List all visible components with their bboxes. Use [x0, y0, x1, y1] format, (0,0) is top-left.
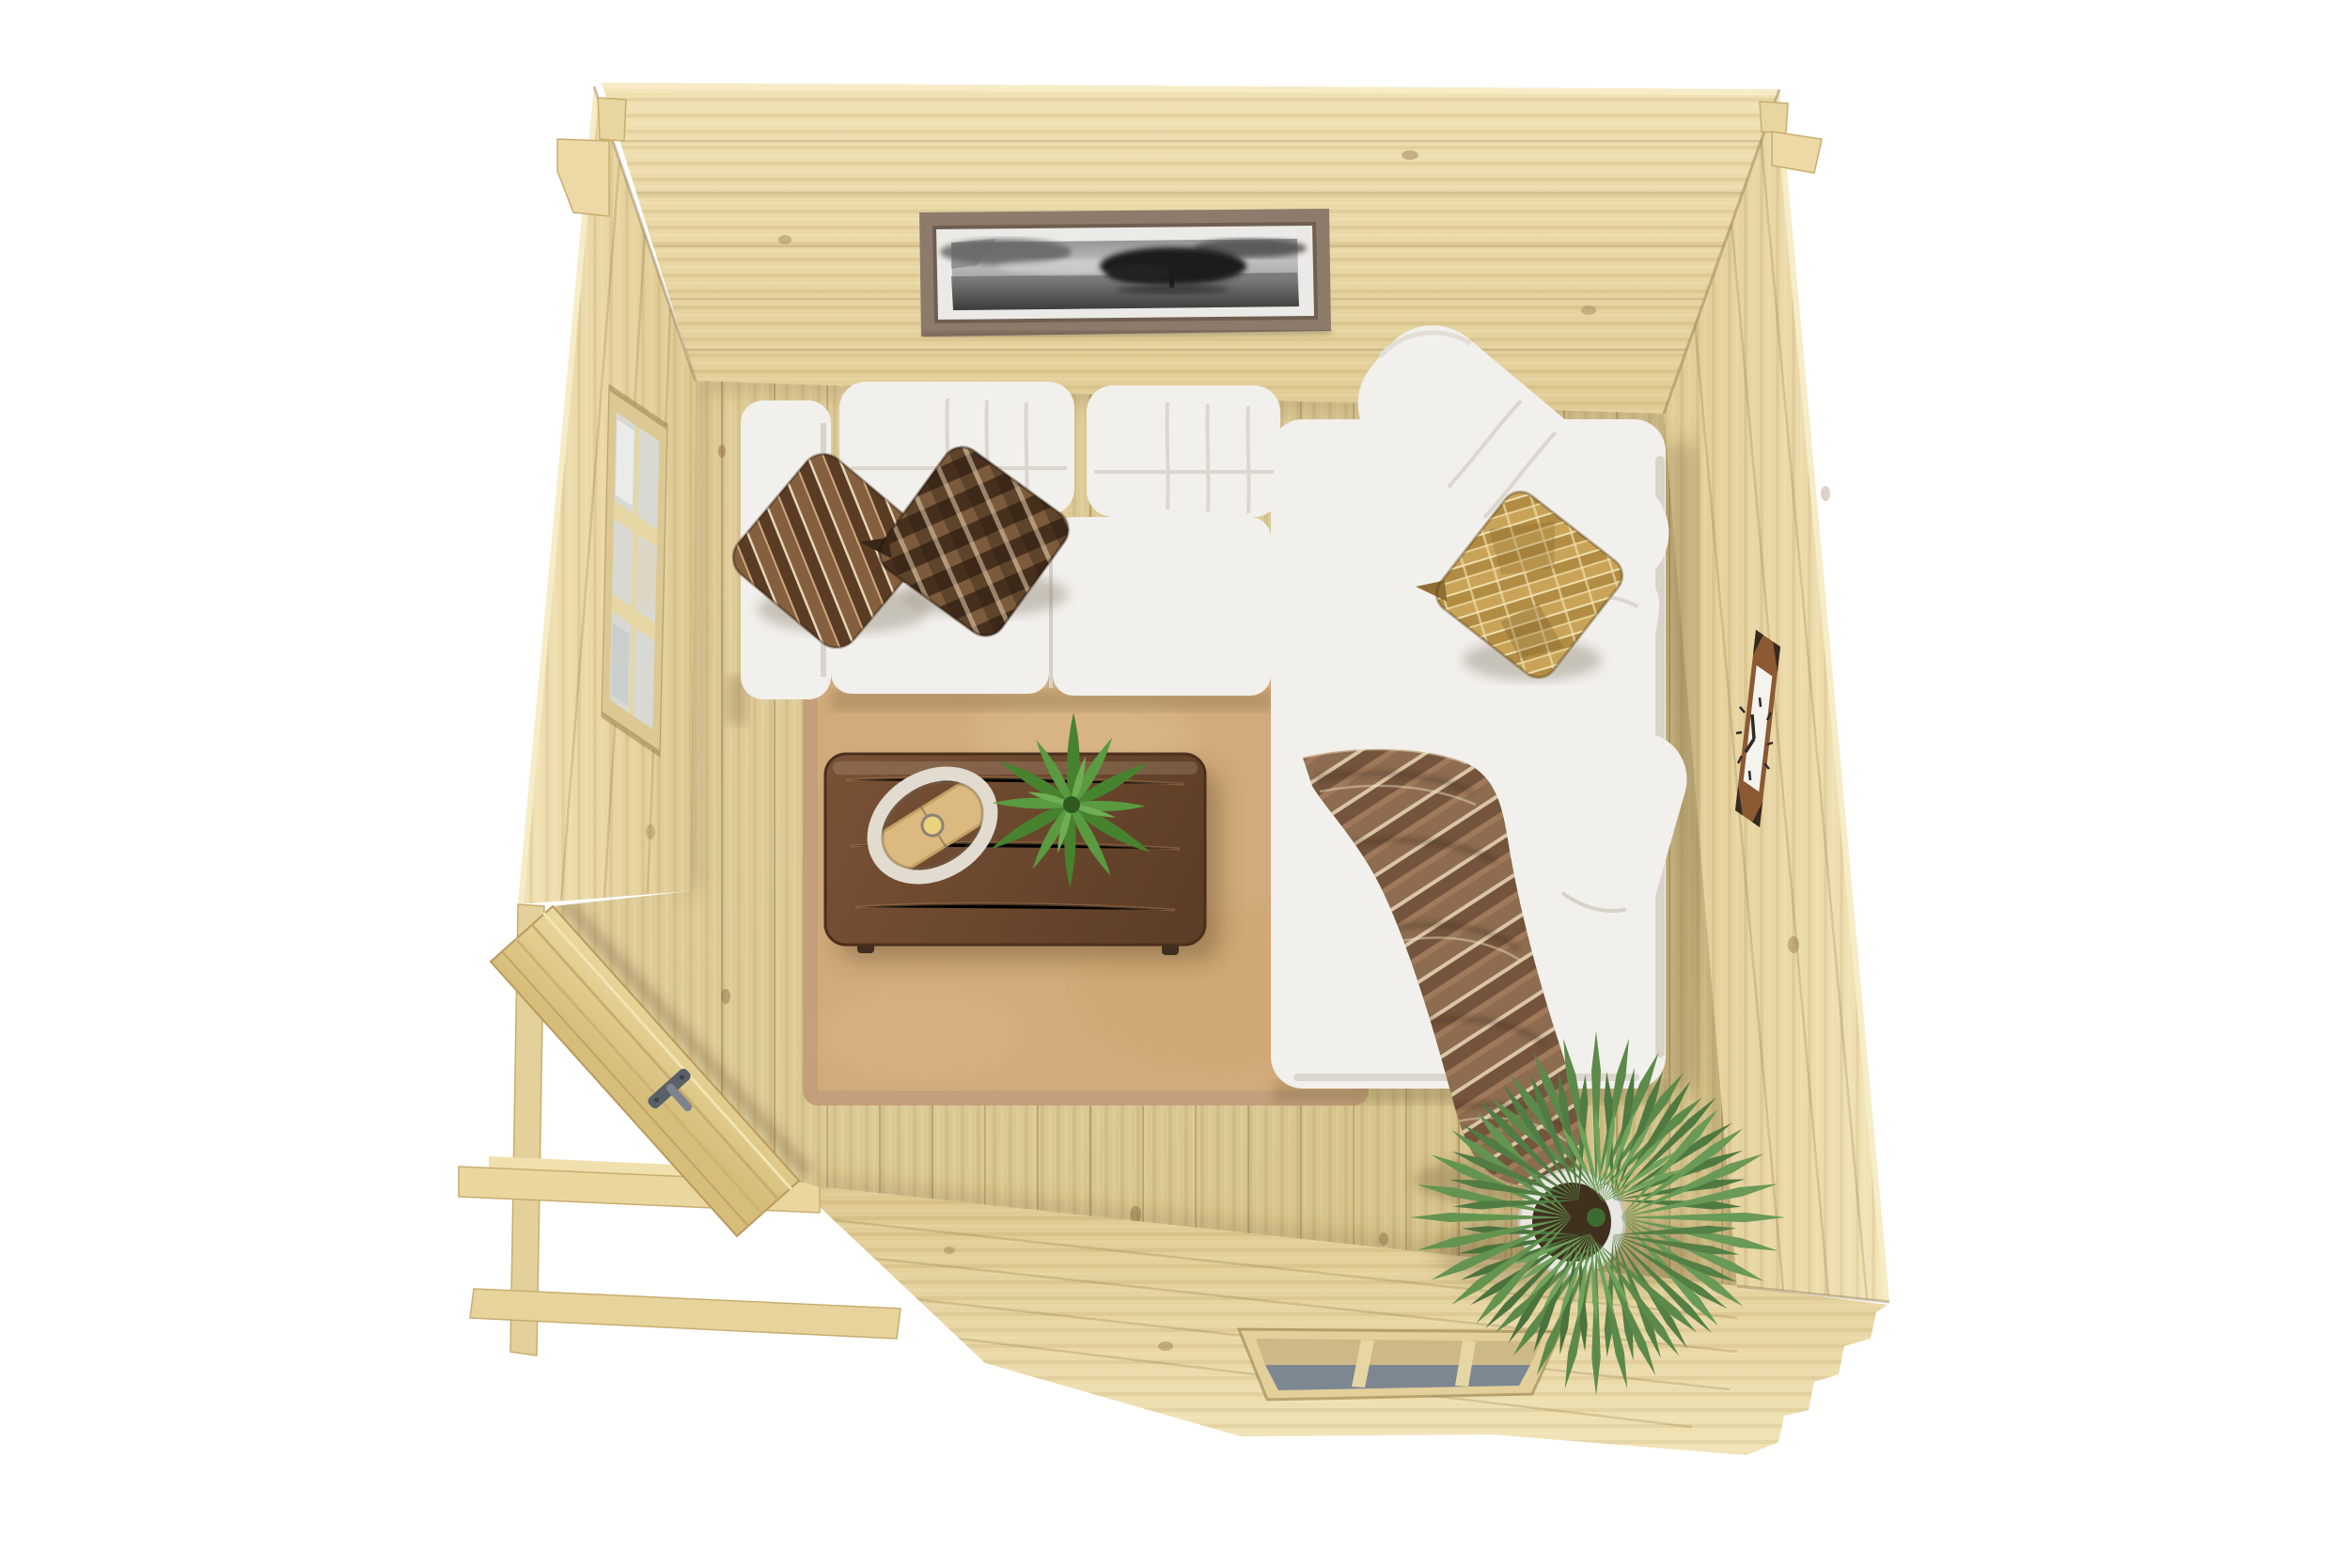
back-cushion-right — [1087, 385, 1280, 517]
left-window — [602, 387, 667, 754]
roof-stub-right — [1772, 132, 1822, 173]
seat-cushion-right — [1053, 517, 1271, 696]
bw-photo — [940, 239, 1307, 310]
render-canvas — [0, 0, 2350, 1568]
corner-post-tip-left — [598, 98, 626, 141]
corner-post-tip-right — [1760, 102, 1788, 133]
bottom-window — [1239, 1329, 1560, 1400]
roof-stub-left — [557, 139, 609, 216]
framed-picture — [919, 209, 1331, 337]
